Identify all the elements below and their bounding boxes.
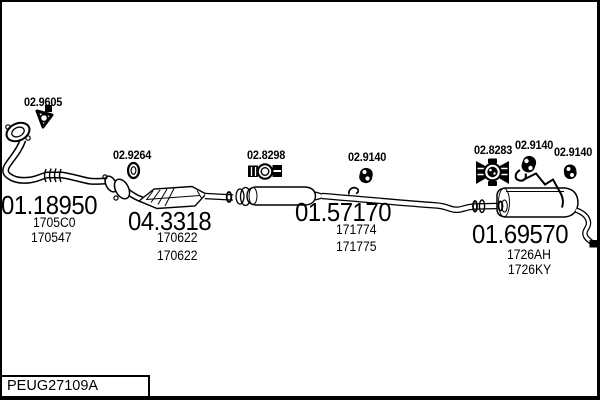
part-number-02-9140-c: 02.9140: [554, 148, 592, 160]
part-number-02-8298: 02.8298: [247, 151, 285, 163]
part-number-02-9140-b: 02.9140: [515, 141, 553, 153]
part-number-01-69570: 01.69570: [472, 221, 568, 247]
part-number-02-9264: 02.9264: [113, 151, 151, 163]
part-number-02-9140-a: 02.9140: [348, 153, 386, 165]
part-ref-1726KY: 1726KY: [508, 263, 551, 277]
rear-silencer: [497, 188, 578, 217]
part-number-02-8283: 02.8283: [474, 146, 512, 158]
drawing-code-box: PEUG27109A: [0, 375, 150, 398]
pipe-clamp-icon: [248, 164, 282, 178]
tailpipe-end-marker: [590, 241, 598, 248]
ball-joint: [103, 174, 143, 201]
part-ref-170622-a: 170622: [157, 231, 198, 245]
rubber-mount-icon-2: [520, 154, 538, 174]
pipe-hanger-hook: [349, 188, 358, 195]
flange-gasket-icon: [37, 111, 52, 127]
ring-gasket-icon: [128, 163, 139, 178]
front-flange: [4, 119, 33, 145]
intermediate-pipe: [205, 192, 233, 202]
part-ref-171775: 171775: [336, 240, 377, 254]
part-ref-1705C0: 1705C0: [33, 216, 76, 230]
rubber-mount-icon-3: [563, 164, 577, 180]
part-ref-171774: 171774: [336, 223, 377, 237]
part-number-02-9605: 02.9605: [24, 98, 62, 110]
drawing-code: PEUG27109A: [2, 377, 148, 396]
part-ref-170547: 170547: [31, 231, 72, 245]
tail-pipe: [576, 210, 598, 247]
exhaust-parts-diagram: 02.9605 02.9264 02.8298 02.9140 02.8283 …: [0, 0, 600, 400]
part-ref-1726AH: 1726AH: [507, 248, 551, 262]
butterfly-clamp-icon: [476, 159, 509, 187]
rubber-mount-icon-1: [358, 167, 374, 184]
part-ref-170622-b: 170622: [157, 249, 198, 263]
front-pipe: [4, 119, 107, 182]
